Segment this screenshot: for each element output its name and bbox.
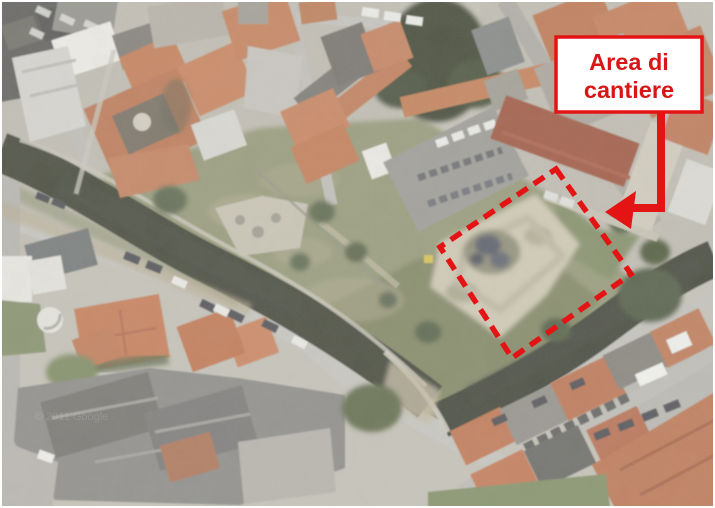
svg-text:cantiere: cantiere xyxy=(584,77,674,103)
svg-text:Area di: Area di xyxy=(589,49,669,75)
svg-text:© 2011 Google: © 2011 Google xyxy=(35,411,108,423)
